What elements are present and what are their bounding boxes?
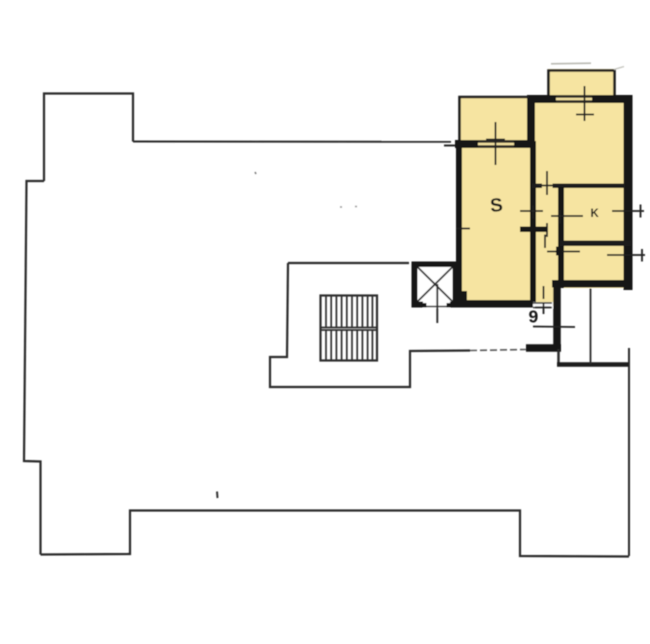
svg-text:K: K (591, 208, 600, 220)
svg-text:9: 9 (529, 307, 539, 327)
svg-text:S: S (489, 195, 503, 217)
